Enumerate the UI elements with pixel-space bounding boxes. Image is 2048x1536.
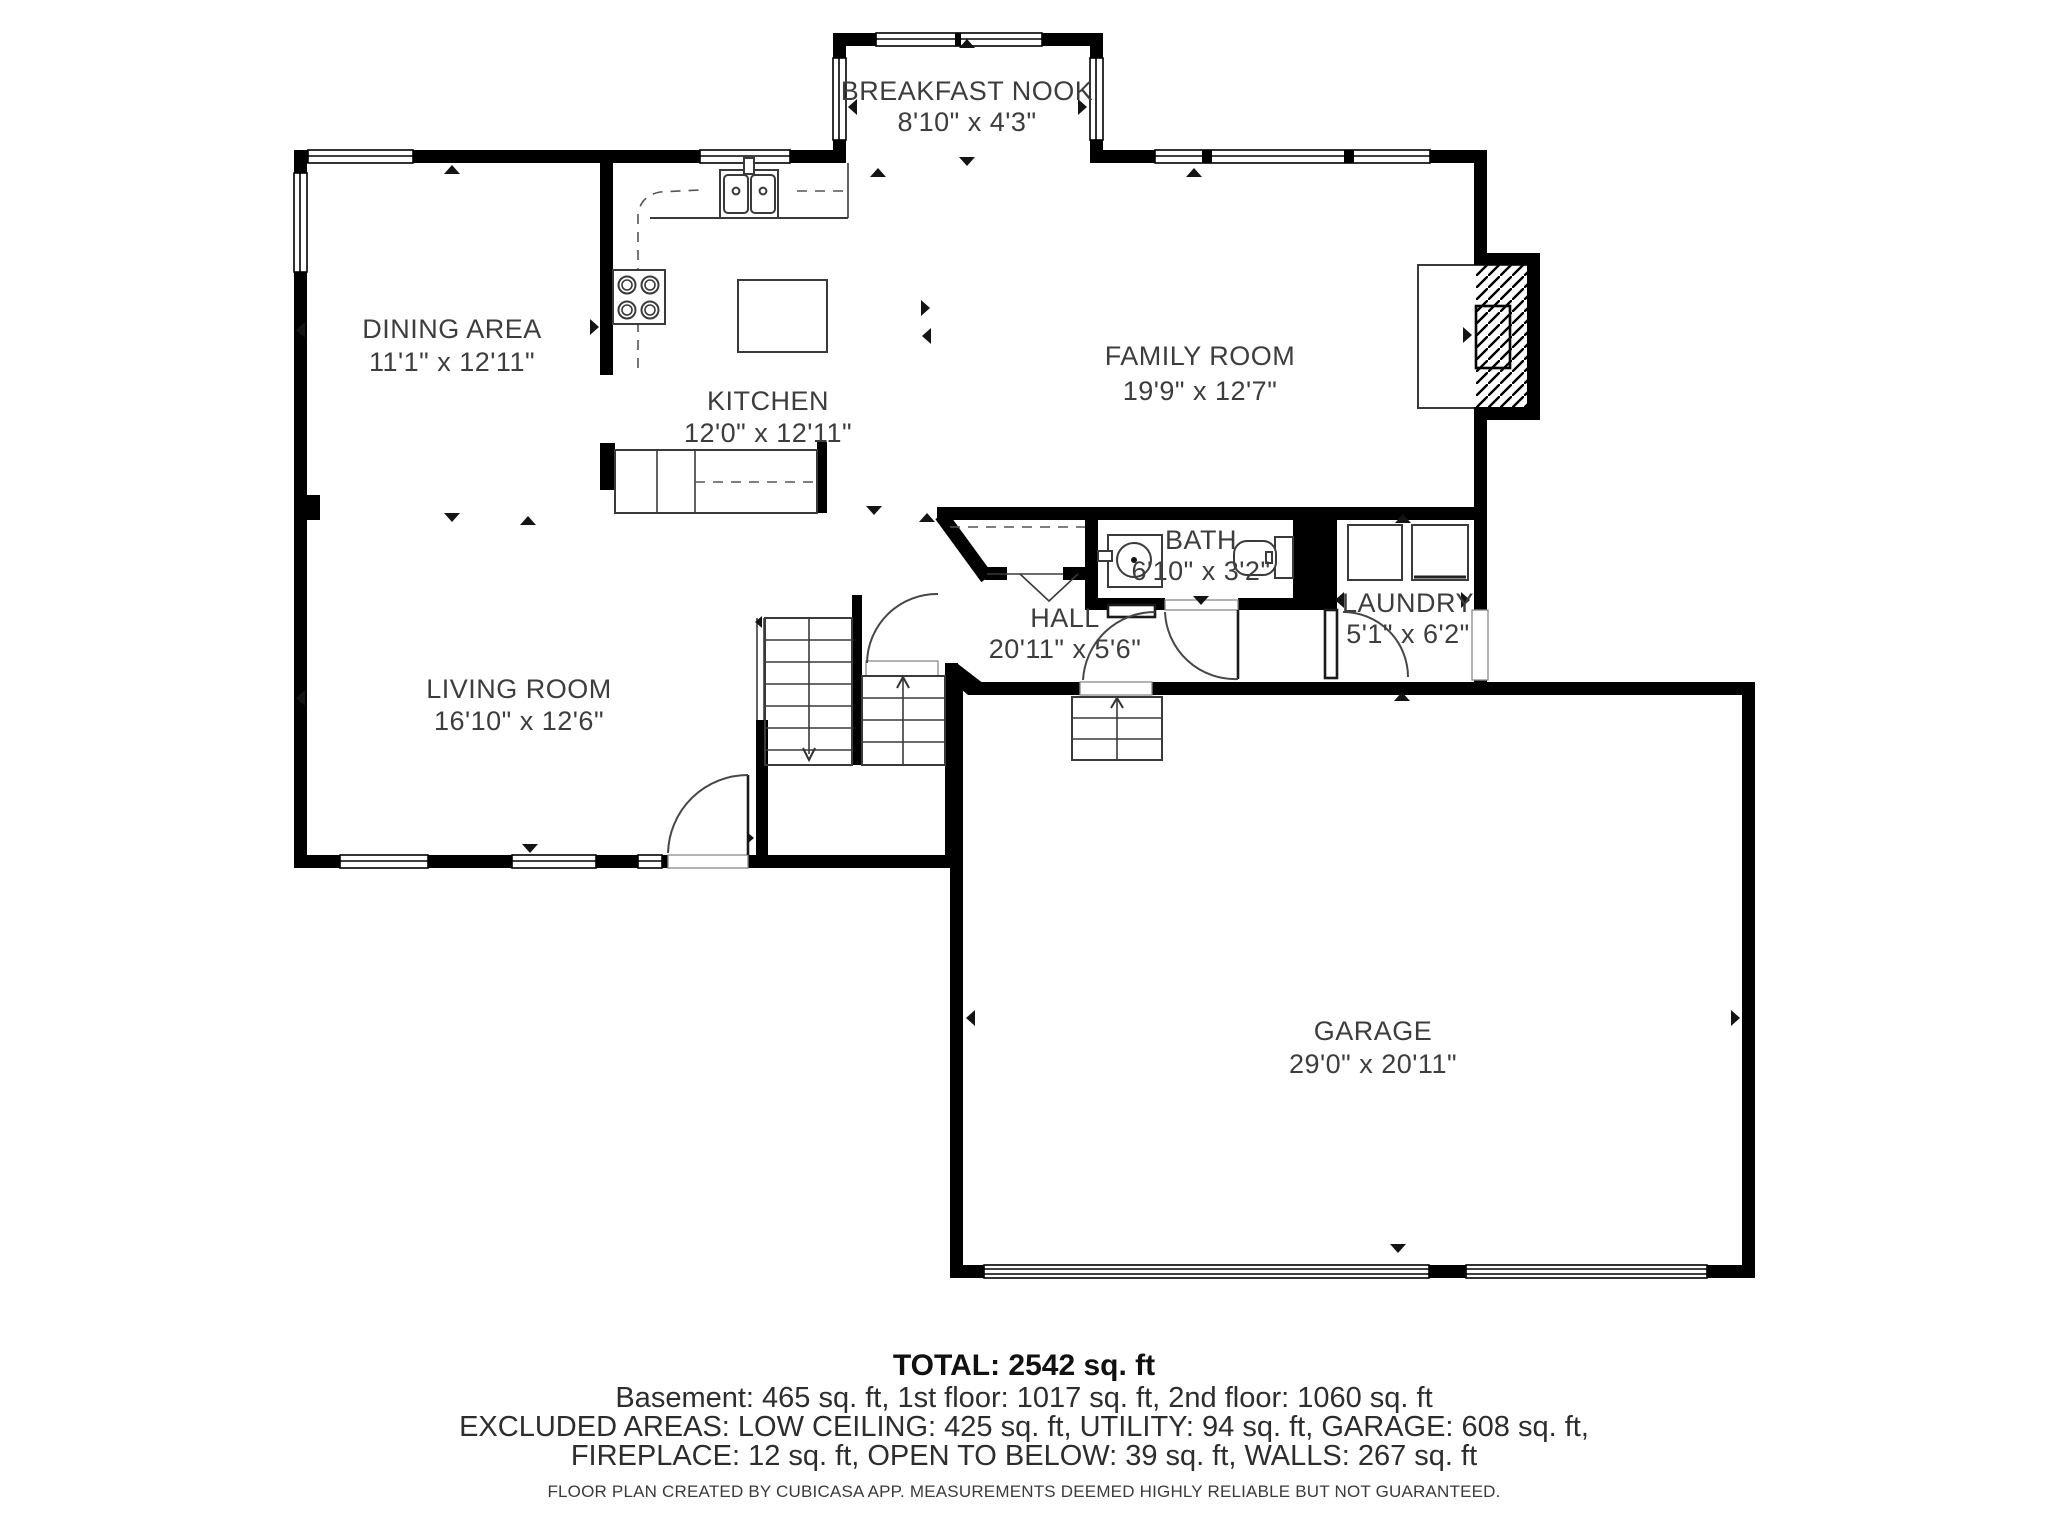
room-name-family-room: FAMILY ROOM bbox=[1105, 341, 1296, 371]
room-dims-living-room: 16'10" x 12'6" bbox=[434, 706, 604, 736]
washer bbox=[1348, 525, 1402, 580]
kitchen-sink bbox=[720, 158, 778, 218]
window bbox=[876, 33, 1042, 46]
window bbox=[308, 150, 413, 163]
room-dims-garage: 29'0" x 20'11" bbox=[1289, 1049, 1457, 1079]
interior-walls bbox=[294, 150, 1474, 868]
window bbox=[1155, 150, 1430, 163]
bath-door bbox=[1165, 600, 1238, 679]
window bbox=[294, 173, 307, 272]
room-name-dining-area: DINING AREA bbox=[362, 314, 542, 344]
fireplace bbox=[1418, 253, 1540, 420]
room-dims-hall: 20'11" x 5'6" bbox=[989, 634, 1142, 664]
garage-entry-steps bbox=[1072, 697, 1162, 760]
room-name-garage: GARAGE bbox=[1314, 1016, 1433, 1046]
garage-doors bbox=[984, 1265, 1707, 1278]
window bbox=[340, 855, 428, 868]
kitchen-fixtures bbox=[613, 158, 848, 513]
room-name-living-room: LIVING ROOM bbox=[426, 674, 612, 704]
room-dims-family-room: 19'9" x 12'7" bbox=[1123, 376, 1278, 406]
room-name-breakfast-nook: BREAKFAST NOOK bbox=[841, 76, 1094, 106]
excluded-areas-line2: FIREPLACE: 12 sq. ft, OPEN TO BELOW: 39 … bbox=[0, 1440, 2048, 1473]
disclaimer: FLOOR PLAN CREATED BY CUBICASA APP. MEAS… bbox=[0, 1482, 2048, 1502]
stove bbox=[613, 270, 665, 324]
window-sidelight bbox=[638, 855, 662, 868]
floor-plan-page: { "rooms": [ {"name":"BREAKFAST NOOK","d… bbox=[0, 0, 2048, 1536]
room-name-bath: BATH bbox=[1165, 525, 1237, 555]
kitchen-island bbox=[738, 280, 827, 352]
dryer bbox=[1412, 525, 1468, 580]
total-area: TOTAL: 2542 sq. ft bbox=[0, 1349, 2048, 1383]
room-dims-dining-area: 11'1" x 12'11" bbox=[369, 347, 535, 377]
floor-plan-canvas: BREAKFAST NOOK 8'10" x 4'3" DINING AREA … bbox=[0, 0, 2048, 1536]
room-dims-laundry: 5'1" x 6'2" bbox=[1346, 619, 1470, 649]
stair-door bbox=[866, 594, 938, 676]
room-name-hall: HALL bbox=[1030, 603, 1100, 633]
room-name-kitchen: KITCHEN bbox=[707, 386, 829, 416]
garage-door bbox=[984, 1265, 1429, 1278]
room-dims-breakfast-nook: 8'10" x 4'3" bbox=[897, 107, 1036, 137]
room-name-laundry: LAUNDRY bbox=[1342, 588, 1474, 618]
kitchen-peninsula bbox=[615, 450, 817, 513]
room-dims-kitchen: 12'0" x 12'11" bbox=[684, 418, 852, 448]
laundry-fixtures bbox=[1348, 525, 1468, 580]
garage-door bbox=[1466, 1265, 1707, 1278]
main-stairs bbox=[757, 618, 945, 765]
room-dims-bath: 6'10" x 3'2" bbox=[1131, 556, 1270, 586]
laundry-exterior-door bbox=[1472, 610, 1488, 680]
front-door bbox=[668, 775, 748, 868]
window bbox=[512, 855, 596, 868]
